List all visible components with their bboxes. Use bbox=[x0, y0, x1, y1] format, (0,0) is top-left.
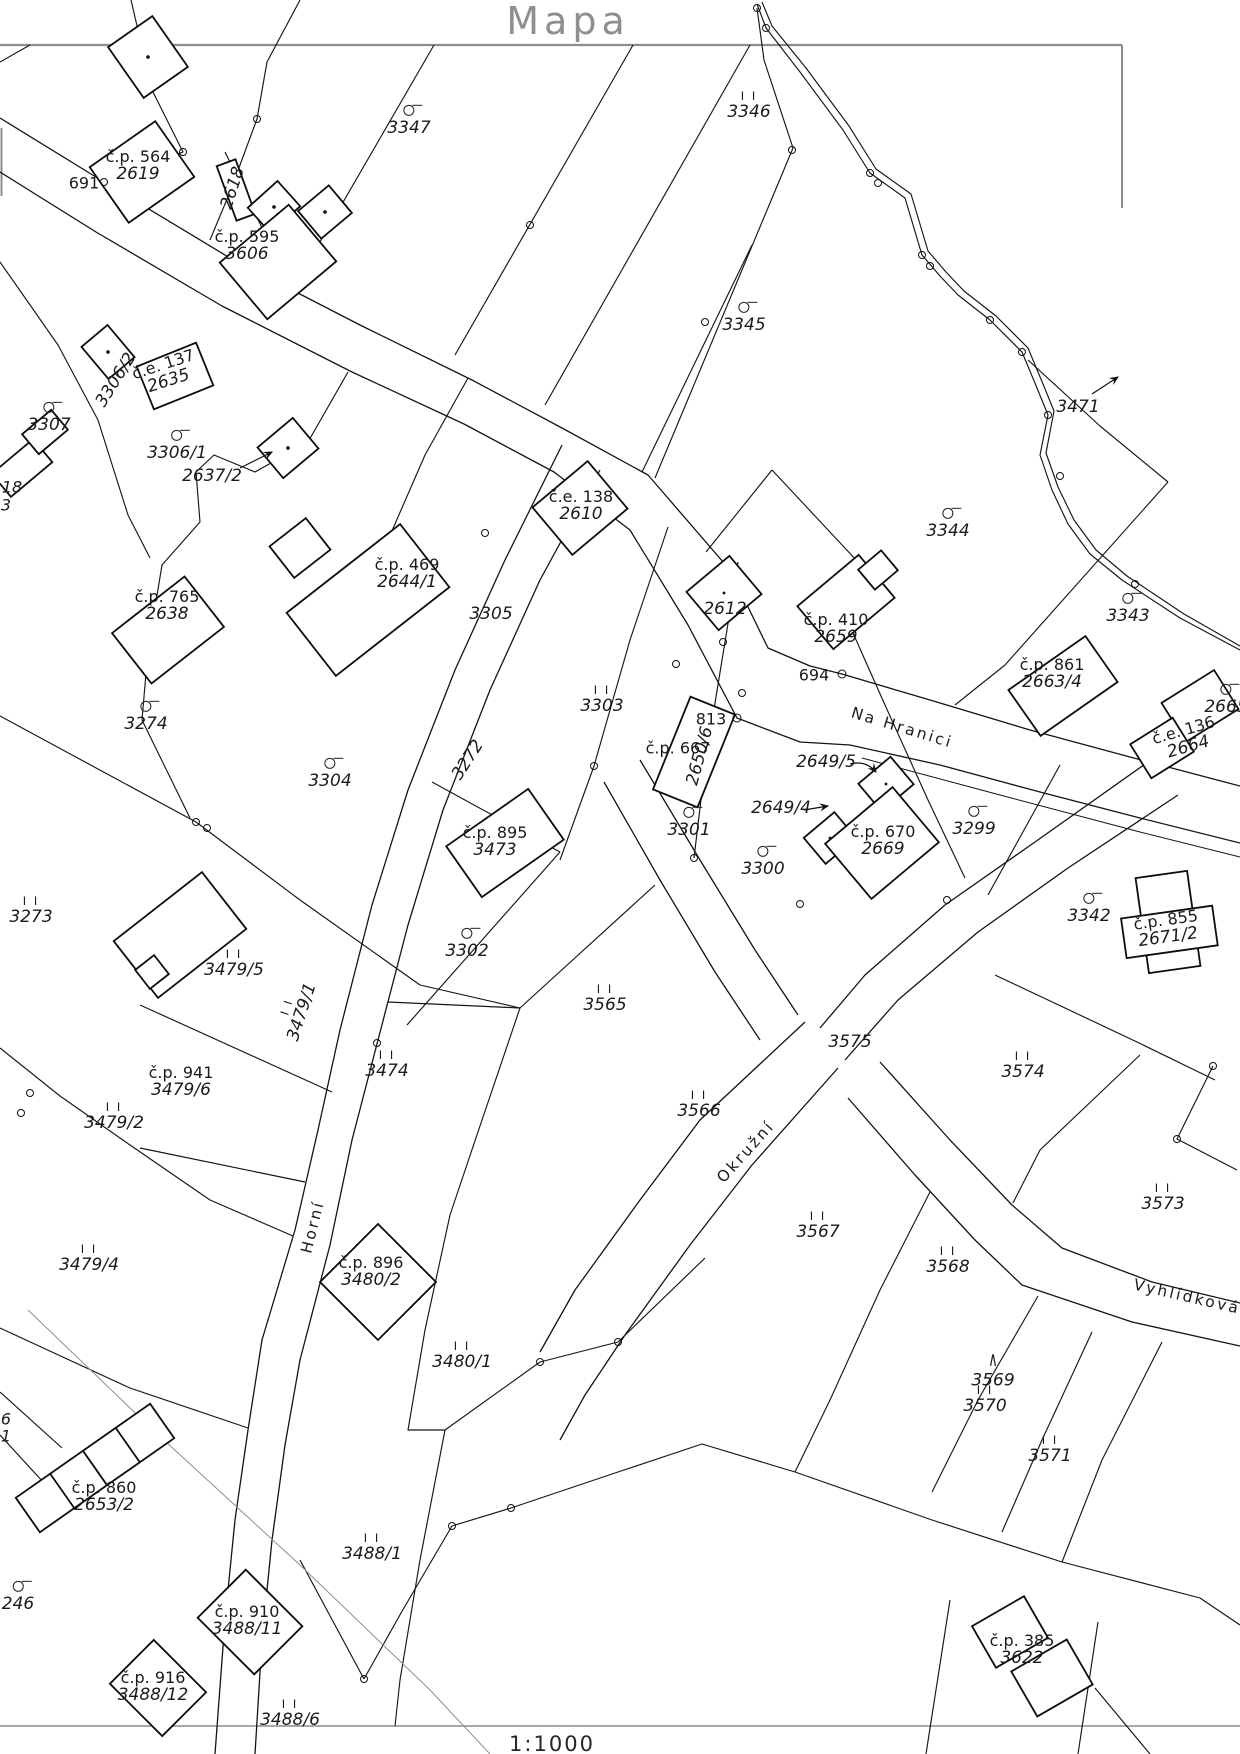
parcel-number: 3479/4 bbox=[59, 1257, 119, 1275]
building-parcel-number: 3606 bbox=[225, 245, 268, 263]
parcel-label: 3304 bbox=[308, 758, 351, 790]
parcel-label: 3306/1 bbox=[147, 430, 207, 462]
landuse-circle-icon bbox=[12, 1581, 23, 1592]
parcel-number: 3480/1 bbox=[432, 1354, 492, 1372]
parcel-label: 2665 bbox=[1204, 684, 1240, 716]
parcel-number: 3301 bbox=[667, 821, 710, 839]
house-number: č.p. 469 bbox=[375, 556, 440, 573]
landuse-circle-icon bbox=[757, 846, 768, 857]
parcel-label: 2649/5 bbox=[796, 753, 856, 771]
parcel-label: I I3573 bbox=[1141, 1182, 1184, 1214]
building-parcel-number: 2638 bbox=[145, 605, 188, 623]
parcel-label: I I3479/1 bbox=[272, 977, 321, 1044]
parcel-label: 3344 bbox=[926, 508, 969, 540]
parcel-number: 2649/5 bbox=[796, 753, 856, 771]
parcel-label: I I3479/5 bbox=[204, 948, 264, 980]
house-number: č.p. 910 bbox=[215, 1603, 280, 1620]
parcel-label: 2650/6 bbox=[683, 725, 716, 788]
building-label: č.p. 8552671/2 bbox=[1132, 907, 1201, 951]
parcel-number: 3306/1 bbox=[147, 444, 207, 462]
landuse-circle-icon bbox=[1220, 684, 1231, 695]
parcel-label: 3343 bbox=[1106, 593, 1149, 625]
parcel-label: 3299 bbox=[952, 806, 995, 838]
parcel-number: 3471 bbox=[1056, 398, 1099, 416]
parcel-label: 2649/4 bbox=[751, 799, 811, 817]
building-parcel-number: 3488/12 bbox=[118, 1686, 189, 1704]
parcel-number: 3303 bbox=[580, 698, 623, 716]
parcel-label: I I3568 bbox=[926, 1245, 969, 1277]
building-label: č.e. 1372635 bbox=[130, 346, 202, 400]
parcel-number: 3488/1 bbox=[342, 1546, 402, 1564]
parcel-number: 3304 bbox=[308, 772, 351, 790]
building-parcel-number: 3622 bbox=[1000, 1649, 1043, 1667]
building-label: č.p. 8953473 bbox=[463, 824, 528, 860]
house-number: č.p. 855 bbox=[1132, 907, 1199, 933]
building-parcel-number: 2669 bbox=[861, 840, 904, 858]
house-number: č.p. 765 bbox=[135, 588, 200, 605]
landuse-circle-icon bbox=[43, 402, 54, 413]
parcel-label: 3347 bbox=[387, 105, 430, 137]
scale-label: 1:1000 bbox=[509, 1732, 595, 1754]
building-label: č.p. 4102659 bbox=[804, 611, 869, 647]
landuse-meadow-icon: I I bbox=[594, 684, 610, 696]
parcel-number: 3347 bbox=[387, 119, 430, 137]
building-label: č.p. 7652638 bbox=[135, 588, 200, 624]
parcel-number: 2649/4 bbox=[751, 799, 811, 817]
building-label: č.p. 8602653/2 bbox=[72, 1479, 137, 1515]
parcel-number: 3488/6 bbox=[260, 1712, 320, 1730]
building-parcel-number: 2664 bbox=[1165, 733, 1212, 763]
parcel-number: 246 bbox=[2, 1595, 34, 1613]
parcel-number: 3474 bbox=[365, 1063, 408, 1081]
street-name: Okružní bbox=[714, 1118, 778, 1187]
house-number: č.p. 941 bbox=[149, 1064, 214, 1081]
street-name: Na Hranici bbox=[849, 705, 955, 752]
building-label: č.p. 5953606 bbox=[215, 228, 280, 264]
house-number: č.p. 564 bbox=[106, 148, 171, 165]
landuse-meadow-icon: I I bbox=[106, 1101, 122, 1113]
parcel-label: 246 bbox=[2, 1581, 34, 1613]
house-number: č.p. 595 bbox=[215, 228, 280, 245]
parcel-label: 3345 bbox=[722, 302, 765, 334]
parcel-label: 3306/2 bbox=[92, 350, 139, 410]
parcel-number: 3302 bbox=[445, 942, 488, 960]
building-parcel-number: 2659 bbox=[814, 628, 857, 646]
parcel-number: 3305 bbox=[469, 605, 512, 623]
parcel-label: 3575 bbox=[828, 1033, 871, 1051]
parcel-number: 3479/1 bbox=[284, 981, 320, 1044]
parcel-number: 3274 bbox=[124, 715, 167, 733]
landuse-meadow-icon: I I bbox=[23, 895, 39, 907]
house-number: č.e. 137 bbox=[130, 346, 197, 382]
parcel-number: 2612 bbox=[703, 600, 746, 618]
landuse-meadow-icon: I I bbox=[810, 1210, 826, 1222]
building-parcel-number: 2644/1 bbox=[377, 573, 437, 591]
parcel-label: 3272 bbox=[449, 737, 488, 783]
landuse-circle-icon bbox=[324, 758, 335, 769]
house-number: č.p. 861 bbox=[1020, 656, 1085, 673]
parcel-number: 3346 bbox=[727, 104, 770, 122]
parcel-number: 2650/6 bbox=[683, 725, 716, 788]
building-label: č.p. 9413479/6 bbox=[149, 1064, 214, 1100]
parcel-number: 3479/2 bbox=[84, 1115, 144, 1133]
parcel-number: 2665 bbox=[1204, 698, 1240, 716]
partial-label: 1 bbox=[1, 1427, 11, 1444]
building-parcel-number: 2663/4 bbox=[1022, 673, 1082, 691]
parcel-number: 3567 bbox=[796, 1224, 839, 1242]
building-parcel-number: 3480/2 bbox=[341, 1271, 401, 1289]
parcel-number: 3272 bbox=[449, 737, 488, 783]
parcel-label: I I3346 bbox=[727, 90, 770, 122]
parcel-label: 3305 bbox=[469, 605, 512, 623]
cadastral-map: 3347I I3346334534713344334333073306/1330… bbox=[0, 0, 1240, 1754]
landuse-circle-icon bbox=[1083, 893, 1094, 904]
landuse-circle-icon bbox=[738, 302, 749, 313]
landuse-meadow-icon: I I bbox=[1155, 1182, 1171, 1194]
street-name: Vyhlídková bbox=[1132, 1277, 1240, 1318]
landuse-meadow-icon: I I bbox=[1015, 1050, 1031, 1062]
parcel-number: 3300 bbox=[741, 860, 784, 878]
parcel-label: 2637/2 bbox=[182, 467, 242, 485]
building-parcel-number: 3488/11 bbox=[212, 1620, 283, 1638]
page-title: Mapa bbox=[506, 0, 629, 43]
parcel-number: 3566 bbox=[677, 1103, 720, 1121]
street-name: Horní bbox=[298, 1199, 327, 1255]
parcel-number: 3571 bbox=[1028, 1448, 1071, 1466]
point-number: 694 bbox=[799, 666, 830, 683]
point-number: 691 bbox=[69, 174, 100, 191]
building-label: č.p. 667 bbox=[646, 739, 711, 756]
landuse-circle-icon bbox=[461, 928, 472, 939]
house-number: č.p. 667 bbox=[646, 739, 711, 756]
parcel-number: 3570 bbox=[963, 1398, 1006, 1416]
parcel-number: 3569 bbox=[971, 1371, 1014, 1389]
landuse-meadow-icon: I I bbox=[278, 997, 295, 1016]
partial-label: 3 bbox=[1, 496, 11, 513]
parcel-number: 3573 bbox=[1141, 1196, 1184, 1214]
parcel-number: 3342 bbox=[1067, 907, 1110, 925]
parcel-number: 2618 bbox=[218, 165, 249, 212]
parcel-number: 3344 bbox=[926, 522, 969, 540]
landuse-meadow-icon: I I bbox=[364, 1532, 380, 1544]
building-label: č.e. 1362664 bbox=[1150, 713, 1222, 765]
landuse-meadow-icon: I I bbox=[741, 90, 757, 102]
parcel-label: 3471 bbox=[1056, 398, 1099, 416]
house-number: č.p. 896 bbox=[339, 1254, 404, 1271]
landuse-meadow-icon: I I bbox=[226, 948, 242, 960]
parcel-label: 3342 bbox=[1067, 893, 1110, 925]
parcel-label: I I3488/6 bbox=[260, 1698, 320, 1730]
landuse-meadow-icon: I I bbox=[1042, 1434, 1058, 1446]
building-label: č.p. 9163488/12 bbox=[118, 1669, 189, 1705]
tree-icon: ∧ bbox=[988, 1350, 998, 1372]
landuse-circle-icon bbox=[683, 807, 694, 818]
landuse-meadow-icon: I I bbox=[691, 1089, 707, 1101]
building-label: č.p. 8963480/2 bbox=[339, 1254, 404, 1290]
landuse-meadow-icon: I I bbox=[977, 1384, 993, 1396]
landuse-meadow-icon: I I bbox=[940, 1245, 956, 1257]
building-label: č.e. 1382610 bbox=[549, 488, 613, 524]
parcel-label: I I3474 bbox=[365, 1049, 408, 1081]
partial-label: 6 bbox=[1, 1410, 11, 1427]
house-number: č.p. 895 bbox=[463, 824, 528, 841]
parcel-number: 3299 bbox=[952, 820, 995, 838]
parcel-number: 3575 bbox=[828, 1033, 871, 1051]
parcel-number: 3479/5 bbox=[204, 962, 264, 980]
landuse-meadow-icon: I I bbox=[379, 1049, 395, 1061]
house-number: č.p. 410 bbox=[804, 611, 869, 628]
parcel-number: 3568 bbox=[926, 1259, 969, 1277]
parcel-label: 2612 bbox=[703, 600, 746, 618]
parcel-label: I I3479/2 bbox=[84, 1101, 144, 1133]
building-label: č.p. 4692644/1 bbox=[375, 556, 440, 592]
labels-layer: 3347I I3346334534713344334333073306/1330… bbox=[0, 0, 1240, 1754]
landuse-circle-icon bbox=[968, 806, 979, 817]
parcel-number: 3343 bbox=[1106, 607, 1149, 625]
parcel-label: I I3565 bbox=[583, 983, 626, 1015]
parcel-label: I I3567 bbox=[796, 1210, 839, 1242]
house-number: č.p. 385 bbox=[990, 1632, 1055, 1649]
building-label: č.p. 8612663/4 bbox=[1020, 656, 1085, 692]
house-number: č.p. 670 bbox=[851, 823, 916, 840]
building-parcel-number: 3473 bbox=[473, 841, 516, 859]
parcel-label: 3274 bbox=[124, 701, 167, 733]
parcel-number: 2637/2 bbox=[182, 467, 242, 485]
parcel-label: I I3574 bbox=[1001, 1050, 1044, 1082]
parcel-label: I I3566 bbox=[677, 1089, 720, 1121]
building-parcel-number: 2610 bbox=[559, 505, 602, 523]
partial-label: 18 bbox=[2, 478, 22, 495]
landuse-circle-icon bbox=[403, 105, 414, 116]
landuse-circle-icon bbox=[1122, 593, 1133, 604]
building-parcel-number: 2635 bbox=[145, 366, 192, 397]
parcel-label: 2618 bbox=[218, 165, 249, 212]
parcel-label: I I3488/1 bbox=[342, 1532, 402, 1564]
parcel-label: 3302 bbox=[445, 928, 488, 960]
landuse-circle-icon bbox=[140, 701, 151, 712]
parcel-number: 3574 bbox=[1001, 1064, 1044, 1082]
parcel-label: I I3571 bbox=[1028, 1434, 1071, 1466]
building-parcel-number: 2653/2 bbox=[74, 1496, 134, 1514]
building-parcel-number: 2619 bbox=[116, 165, 159, 183]
landuse-meadow-icon: I I bbox=[454, 1340, 470, 1352]
parcel-number: 3307 bbox=[27, 416, 70, 434]
parcel-label: ∧3569 bbox=[971, 1354, 1014, 1389]
parcel-label: I I3480/1 bbox=[432, 1340, 492, 1372]
landuse-meadow-icon: I I bbox=[81, 1243, 97, 1255]
parcel-label: 3307 bbox=[27, 402, 70, 434]
building-label: č.p. 6702669 bbox=[851, 823, 916, 859]
parcel-number: 3345 bbox=[722, 316, 765, 334]
building-parcel-number: 3479/6 bbox=[151, 1081, 211, 1099]
parcel-number: 3306/2 bbox=[92, 350, 139, 410]
house-number: č.e. 138 bbox=[549, 488, 613, 505]
landuse-circle-icon bbox=[942, 508, 953, 519]
landuse-meadow-icon: I I bbox=[597, 983, 613, 995]
parcel-label: I I3479/4 bbox=[59, 1243, 119, 1275]
point-number: 813 bbox=[696, 710, 727, 727]
building-parcel-number: 2671/2 bbox=[1137, 924, 1199, 951]
landuse-circle-icon bbox=[172, 430, 183, 441]
parcel-label: 3301 bbox=[667, 807, 710, 839]
parcel-label: 3300 bbox=[741, 846, 784, 878]
building-label: č.p. 3853622 bbox=[990, 1632, 1055, 1668]
building-label: č.p. 5642619 bbox=[106, 148, 171, 184]
parcel-label: I I3303 bbox=[580, 684, 623, 716]
parcel-number: 3273 bbox=[9, 909, 52, 927]
parcel-label: I I3570 bbox=[963, 1384, 1006, 1416]
house-number: č.p. 916 bbox=[121, 1669, 186, 1686]
parcel-label: I I3273 bbox=[9, 895, 52, 927]
building-label: č.p. 9103488/11 bbox=[212, 1603, 283, 1639]
landuse-meadow-icon: I I bbox=[282, 1698, 298, 1710]
house-number: č.e. 136 bbox=[1150, 713, 1217, 747]
parcel-number: 3565 bbox=[583, 997, 626, 1015]
house-number: č.p. 860 bbox=[72, 1479, 137, 1496]
